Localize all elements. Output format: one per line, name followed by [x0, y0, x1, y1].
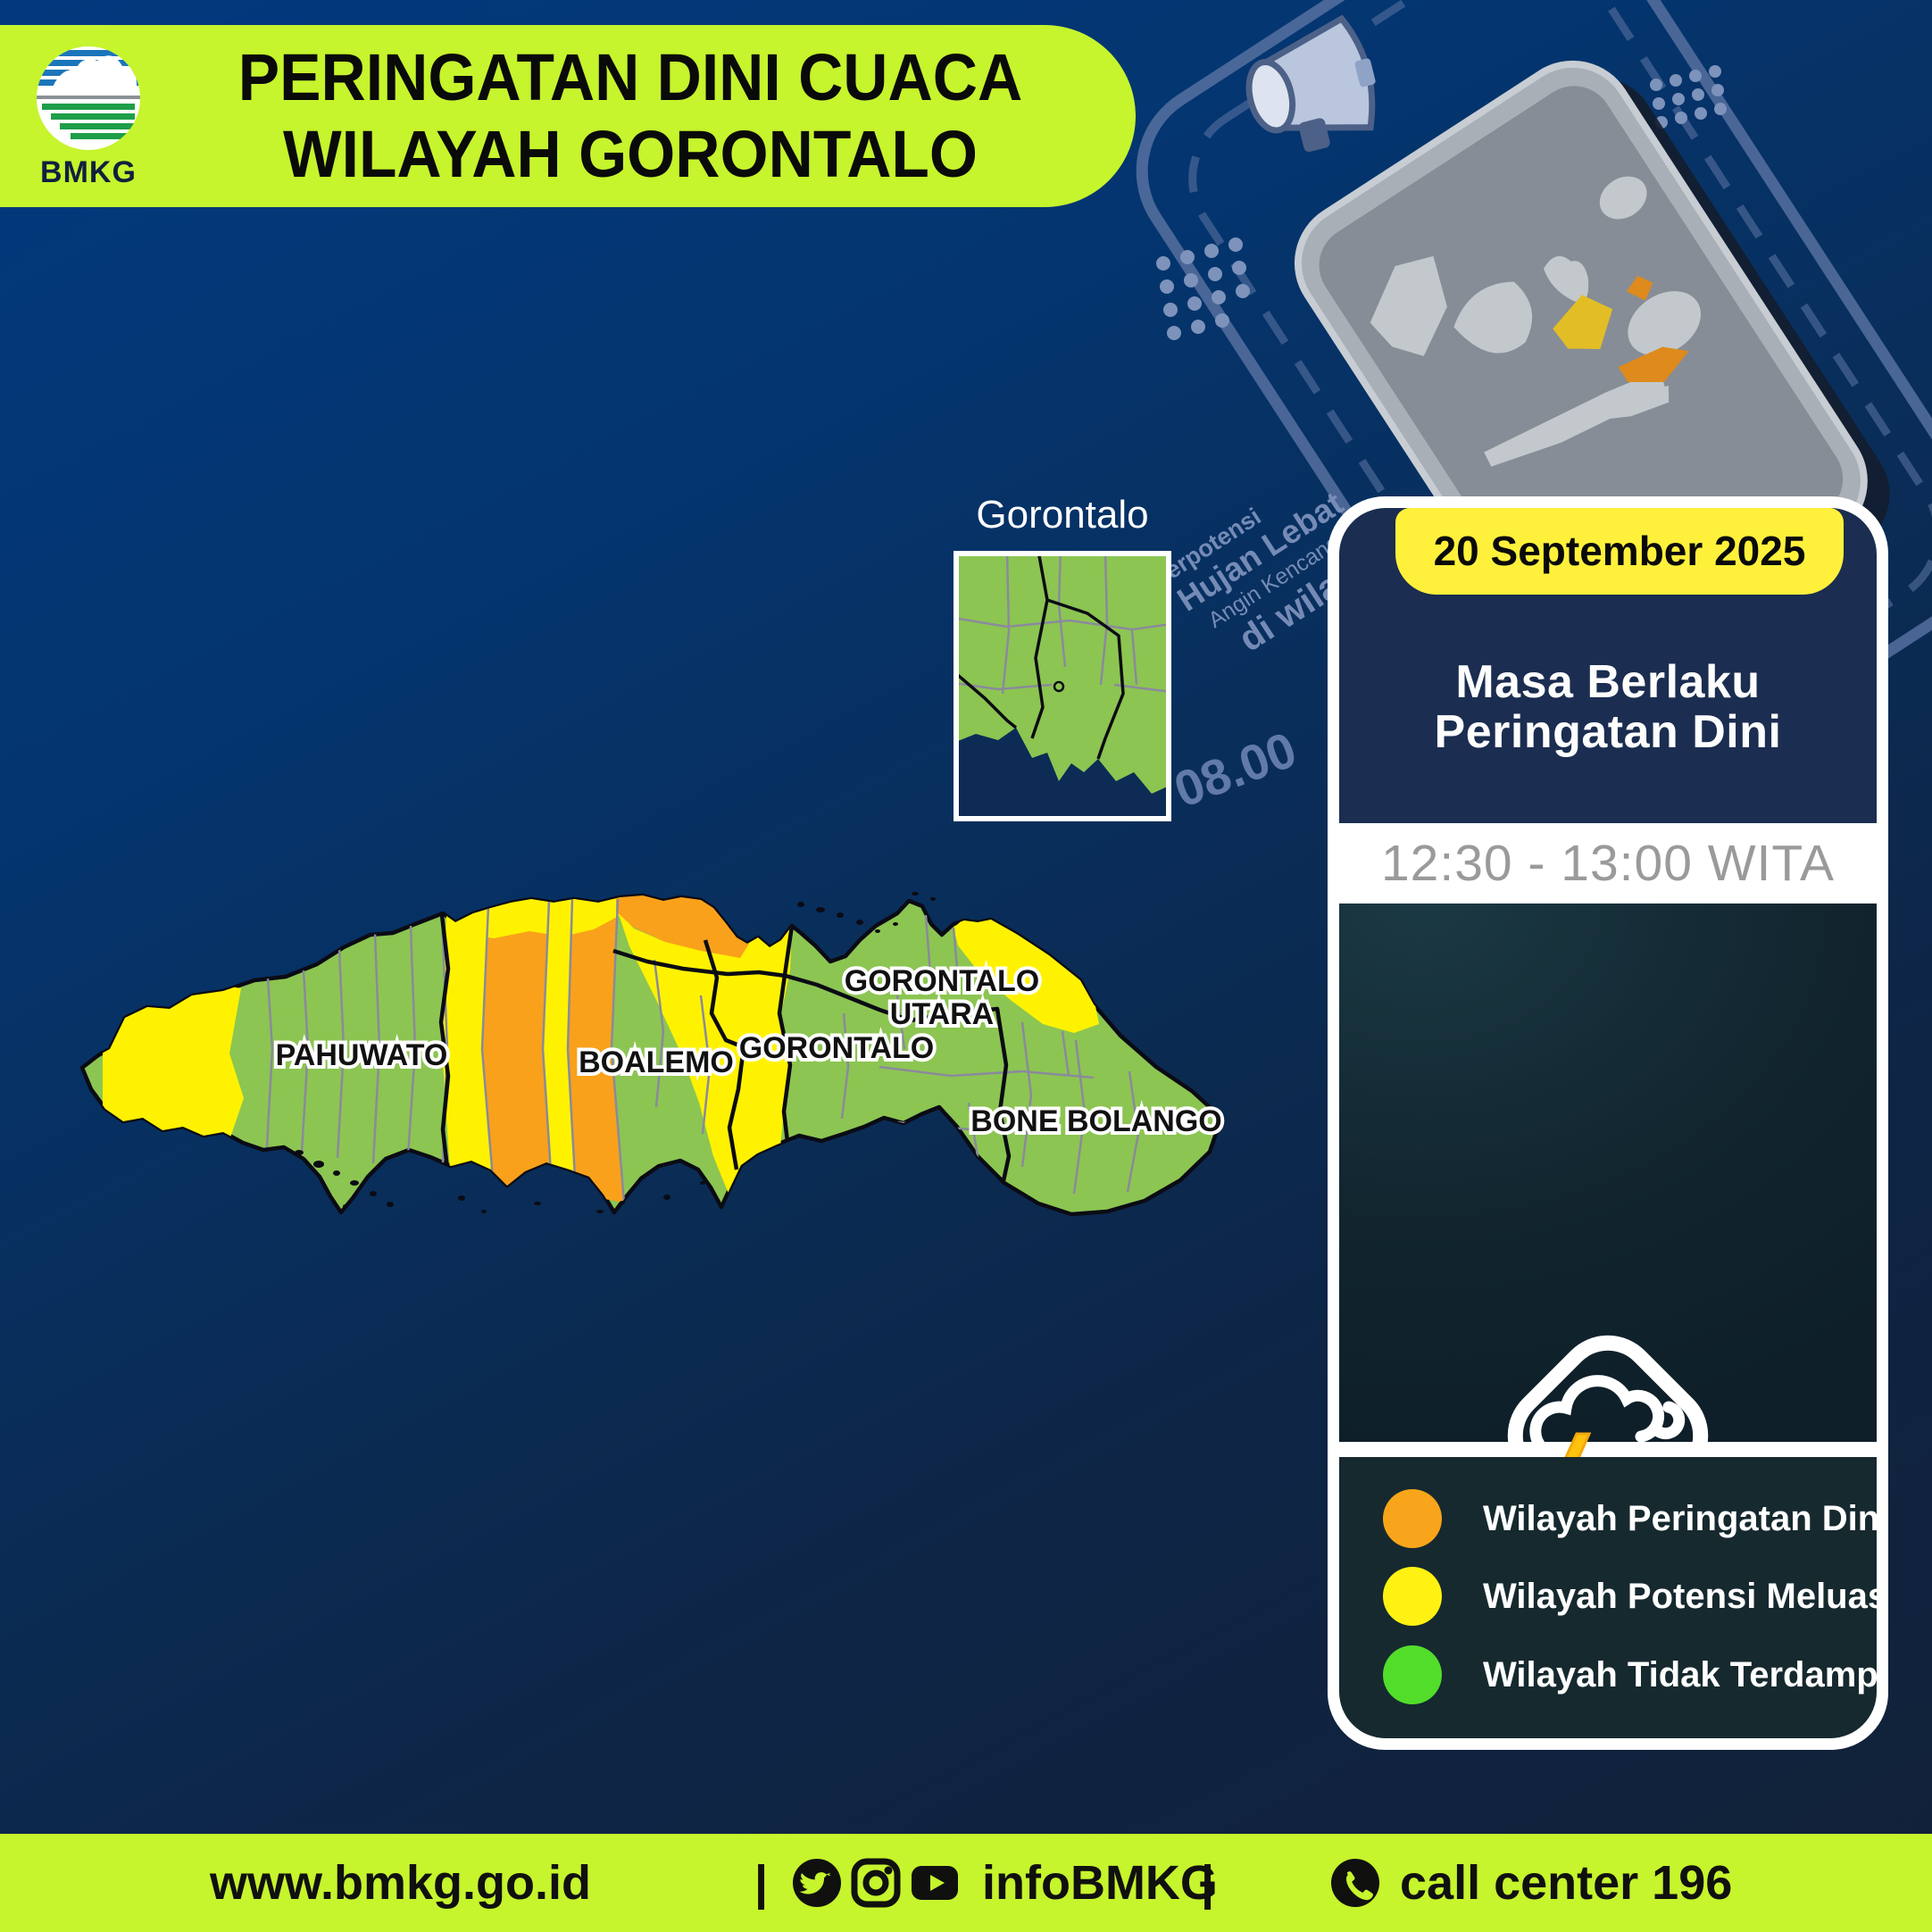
legend-dot-green — [1383, 1645, 1442, 1704]
twitter-icon — [791, 1857, 843, 1909]
validity-section: 20 September 2025 Masa Berlaku Peringata… — [1339, 508, 1877, 823]
footer-call-center: call center 196 — [1400, 1855, 1732, 1911]
validity-title: Masa Berlaku Peringatan Dini — [1339, 657, 1877, 757]
inset-map-title: Gorontalo — [936, 493, 1189, 537]
header-banner: BMKG PERINGATAN DINI CUACA WILAYAH GORON… — [0, 25, 1136, 207]
gorontalo-warning-map: PAHUWATO BOALEMO GORONTALO GORONTALO UTA… — [76, 888, 1237, 1232]
footer-bar: www.bmkg.go.id | infoBMKG | call center … — [0, 1834, 1932, 1932]
title-line-1: PERINGATAN DINI CUACA — [238, 39, 1023, 116]
time-range: 12:30 - 13:00 WITA — [1328, 823, 1888, 904]
label-gorontalo: GORONTALO — [739, 1031, 934, 1065]
bmkg-logo: BMKG — [30, 43, 146, 193]
bmkg-logo-text: BMKG — [30, 155, 146, 190]
svg-text:08.00: 08.00 — [1167, 720, 1303, 818]
footer-social-handle: infoBMKG — [982, 1855, 1218, 1911]
legend-row-unaffected: Wilayah Tidak Terdampak — [1383, 1645, 1888, 1704]
megaphone-icon — [1237, 14, 1388, 162]
footer-separator-2: | — [1201, 1855, 1214, 1911]
hazard-section: Potensi terjadi hujan dengan intensitas … — [1339, 904, 1877, 1442]
label-gorontalo-utara-2: UTARA — [890, 997, 994, 1031]
bmkg-logo-icon — [35, 45, 142, 152]
footer-website: www.bmkg.go.id — [210, 1855, 591, 1911]
youtube-icon — [909, 1857, 961, 1909]
legend-dot-yellow — [1383, 1567, 1442, 1626]
title-line-2: WILAYAH GORONTALO — [283, 116, 978, 193]
label-boalemo: BOALEMO — [579, 1045, 734, 1079]
call-center-icon — [1330, 1858, 1380, 1908]
label-pahuwato: PAHUWATO — [276, 1038, 448, 1072]
poster-title: PERINGATAN DINI CUACA WILAYAH GORONTALO — [189, 25, 1072, 207]
date-pill: 20 September 2025 — [1395, 508, 1844, 595]
label-bone-bolango: BONE BOLANGO — [970, 1104, 1221, 1138]
footer-separator-1: | — [754, 1855, 768, 1911]
infographic-poster: BMKG PERINGATAN DINI CUACA WILAYAH GORON… — [0, 0, 1932, 1932]
legend-row-expansion: Wilayah Potensi Meluas — [1383, 1567, 1887, 1626]
legend-row-warning: Wilayah Peringatan Dini — [1383, 1489, 1888, 1548]
inset-map — [954, 551, 1171, 821]
instagram-icon — [850, 1857, 902, 1909]
label-gorontalo-utara-1: GORONTALO — [845, 964, 1039, 998]
warning-info-card: 20 September 2025 Masa Berlaku Peringata… — [1328, 496, 1888, 1750]
legend-dot-orange — [1383, 1489, 1442, 1548]
